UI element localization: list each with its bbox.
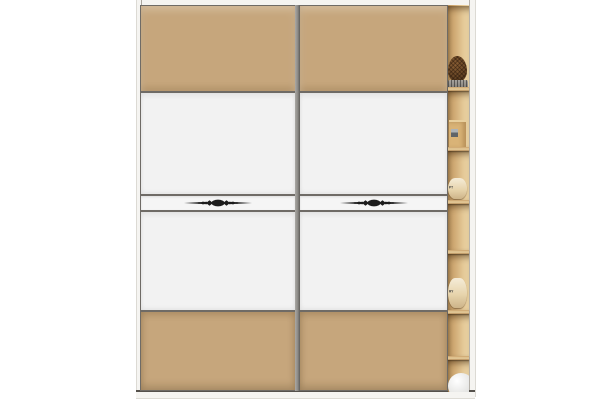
shelf-compartment bbox=[448, 204, 469, 250]
door-panel-white-upper bbox=[300, 93, 447, 194]
shelf-compartment bbox=[448, 314, 469, 356]
wardrobe-frame-right bbox=[469, 0, 476, 397]
door-handle-icon bbox=[183, 199, 253, 207]
shelf-compartment bbox=[448, 360, 469, 392]
shelf-compartment: RY bbox=[448, 254, 469, 310]
wicker-basket bbox=[448, 56, 467, 82]
rolled-package: PT bbox=[448, 178, 467, 199]
door-handle-strip bbox=[141, 196, 295, 210]
towel-label: RY bbox=[449, 290, 453, 293]
door-panel-white-upper bbox=[141, 93, 295, 194]
wardrobe-photo: PT RY bbox=[0, 0, 600, 400]
door-panel-white-lower bbox=[141, 212, 295, 310]
shelf-compartment: PT bbox=[448, 151, 469, 200]
shelf-compartment bbox=[448, 91, 469, 147]
decor-ball bbox=[448, 373, 469, 392]
door-handle-strip bbox=[300, 196, 447, 210]
storage-box bbox=[449, 120, 466, 147]
box-label bbox=[451, 129, 458, 137]
rolled-towel: RY bbox=[448, 278, 467, 308]
door-panel-tan-bottom bbox=[300, 312, 447, 390]
door-panel-tan-top bbox=[141, 6, 295, 91]
left-sliding-door bbox=[141, 6, 295, 390]
door-panel-tan-top bbox=[300, 6, 447, 91]
shelf-compartment bbox=[448, 6, 469, 88]
door-handle-icon bbox=[339, 199, 409, 207]
package-label: PT bbox=[449, 186, 453, 189]
door-panel-white-lower bbox=[300, 212, 447, 310]
wardrobe-frame-bottom bbox=[136, 390, 475, 399]
door-panel-tan-bottom bbox=[141, 312, 295, 390]
sliding-doors-area bbox=[140, 5, 448, 391]
side-shelf-unit: PT RY bbox=[448, 5, 469, 392]
right-sliding-door bbox=[300, 6, 447, 390]
